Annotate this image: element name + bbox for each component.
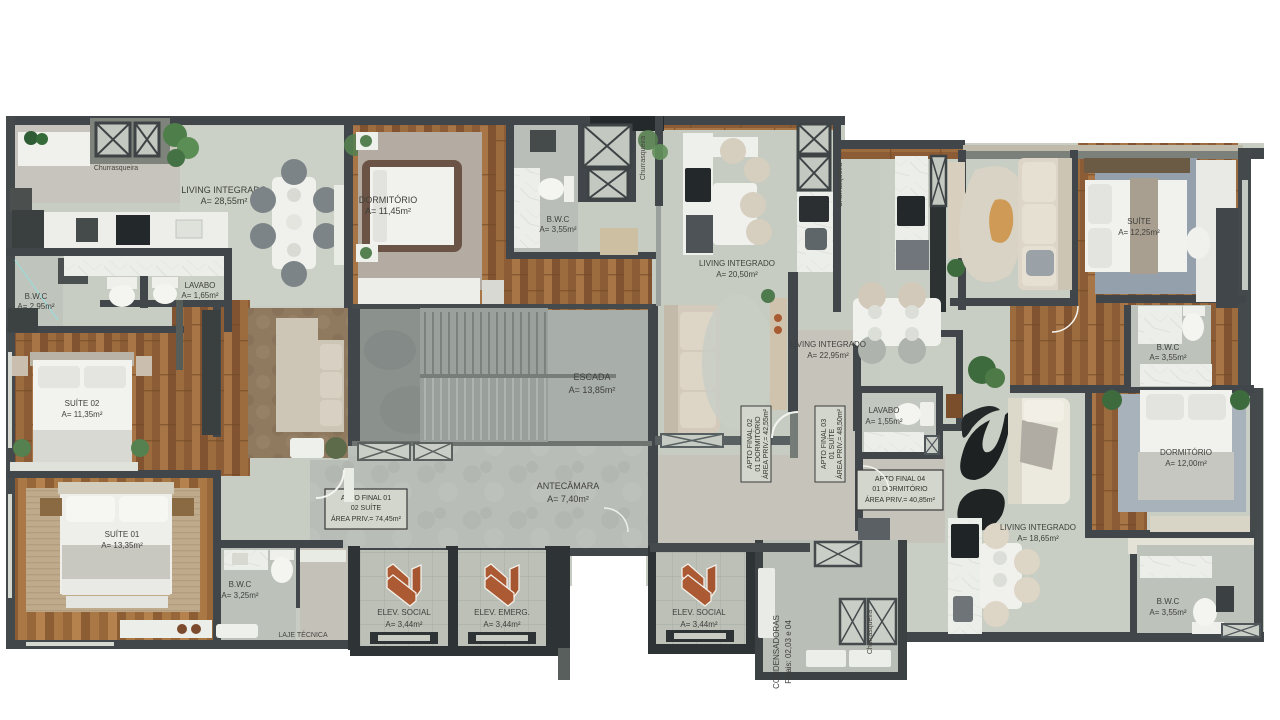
svg-text:A= 3,25m²: A= 3,25m² — [221, 591, 258, 600]
svg-text:DORMITÓRIO: DORMITÓRIO — [359, 195, 418, 205]
svg-text:B.W.C: B.W.C — [547, 215, 570, 224]
svg-text:SUÍTE 02: SUÍTE 02 — [65, 399, 100, 408]
svg-text:A= 3,55m²: A= 3,55m² — [539, 225, 576, 234]
svg-text:A= 22,95m²: A= 22,95m² — [807, 351, 849, 360]
svg-text:B.W.C: B.W.C — [1157, 343, 1180, 352]
svg-text:A= 1,55m²: A= 1,55m² — [865, 417, 902, 426]
svg-text:ÁREA PRIV.= 42,55m²: ÁREA PRIV.= 42,55m² — [761, 408, 770, 479]
svg-text:A= 28,55m²: A= 28,55m² — [201, 196, 248, 206]
svg-text:DORMITÓRIO: DORMITÓRIO — [1160, 448, 1212, 457]
svg-text:A= 13,35m²: A= 13,35m² — [101, 541, 143, 550]
svg-text:01 DORMITÓRIO: 01 DORMITÓRIO — [753, 416, 762, 472]
svg-text:A= 20,50m²: A= 20,50m² — [716, 270, 758, 279]
svg-text:APTO FINAL 02: APTO FINAL 02 — [747, 419, 754, 469]
svg-text:ELEV. EMERG.: ELEV. EMERG. — [474, 608, 530, 617]
svg-text:B.W.C: B.W.C — [229, 580, 252, 589]
svg-text:A= 11,45m²: A= 11,45m² — [365, 206, 411, 216]
svg-text:APTO FINAL 04: APTO FINAL 04 — [875, 476, 925, 483]
svg-text:A= 3,44m²: A= 3,44m² — [385, 620, 422, 629]
svg-text:01 DORMITÓRIO: 01 DORMITÓRIO — [872, 484, 928, 493]
svg-text:LAJE TÉCNICA: LAJE TÉCNICA — [278, 630, 328, 639]
svg-text:APTO FINAL 03: APTO FINAL 03 — [821, 419, 828, 469]
svg-text:ÁREA PRIV.= 74,45m²: ÁREA PRIV.= 74,45m² — [331, 514, 402, 523]
svg-text:Churrasqueira: Churrasqueira — [837, 163, 844, 207]
svg-text:SUÍTE: SUÍTE — [1127, 217, 1151, 226]
svg-text:ÁREA PRIV.= 48,50m²: ÁREA PRIV.= 48,50m² — [835, 408, 844, 479]
svg-text:ANTECÂMARA: ANTECÂMARA — [537, 481, 600, 491]
svg-text:A= 3,44m²: A= 3,44m² — [680, 620, 717, 629]
svg-text:LIVING INTEGRADO: LIVING INTEGRADO — [1000, 523, 1076, 532]
svg-text:A= 13,85m²: A= 13,85m² — [569, 385, 616, 395]
svg-text:A= 3,44m²: A= 3,44m² — [483, 620, 520, 629]
svg-text:02 SUÍTE: 02 SUÍTE — [351, 503, 382, 512]
svg-text:A= 11,35m²: A= 11,35m² — [62, 410, 103, 419]
svg-text:Churrasqueira: Churrasqueira — [867, 610, 874, 654]
svg-text:B.W.C: B.W.C — [25, 292, 48, 301]
svg-text:B.W.C: B.W.C — [1157, 597, 1180, 606]
svg-text:Churrasqueira: Churrasqueira — [640, 136, 647, 180]
svg-text:ÁREA PRIV.= 40,85m²: ÁREA PRIV.= 40,85m² — [865, 495, 936, 504]
svg-text:A= 3,55m²: A= 3,55m² — [1149, 353, 1186, 362]
svg-text:A= 7,40m²: A= 7,40m² — [547, 494, 589, 504]
svg-text:SUÍTE 01: SUÍTE 01 — [105, 530, 140, 539]
svg-text:ESCADA: ESCADA — [573, 372, 610, 382]
svg-text:A= 12,25m²: A= 12,25m² — [1118, 228, 1160, 237]
svg-text:A= 12,00m²: A= 12,00m² — [1165, 459, 1207, 468]
svg-text:A= 1,65m²: A= 1,65m² — [181, 291, 218, 300]
svg-text:01 SUÍTE: 01 SUÍTE — [827, 429, 836, 460]
svg-text:LAVABO: LAVABO — [869, 406, 900, 415]
svg-text:A= 3,55m²: A= 3,55m² — [1149, 608, 1186, 617]
svg-text:LIVING INTEGRADO: LIVING INTEGRADO — [699, 259, 775, 268]
svg-text:Finais: 02,03 e 04: Finais: 02,03 e 04 — [784, 620, 793, 684]
svg-text:A= 18,65m²: A= 18,65m² — [1017, 534, 1059, 543]
svg-text:Churrasqueira: Churrasqueira — [94, 165, 138, 172]
svg-text:ELEV. SOCIAL: ELEV. SOCIAL — [672, 608, 726, 617]
svg-text:LAVABO: LAVABO — [185, 281, 216, 290]
svg-text:CONDENSADORAS: CONDENSADORAS — [772, 615, 781, 689]
svg-text:ELEV. SOCIAL: ELEV. SOCIAL — [377, 608, 431, 617]
svg-text:LIVING INTEGRADO: LIVING INTEGRADO — [790, 340, 866, 349]
